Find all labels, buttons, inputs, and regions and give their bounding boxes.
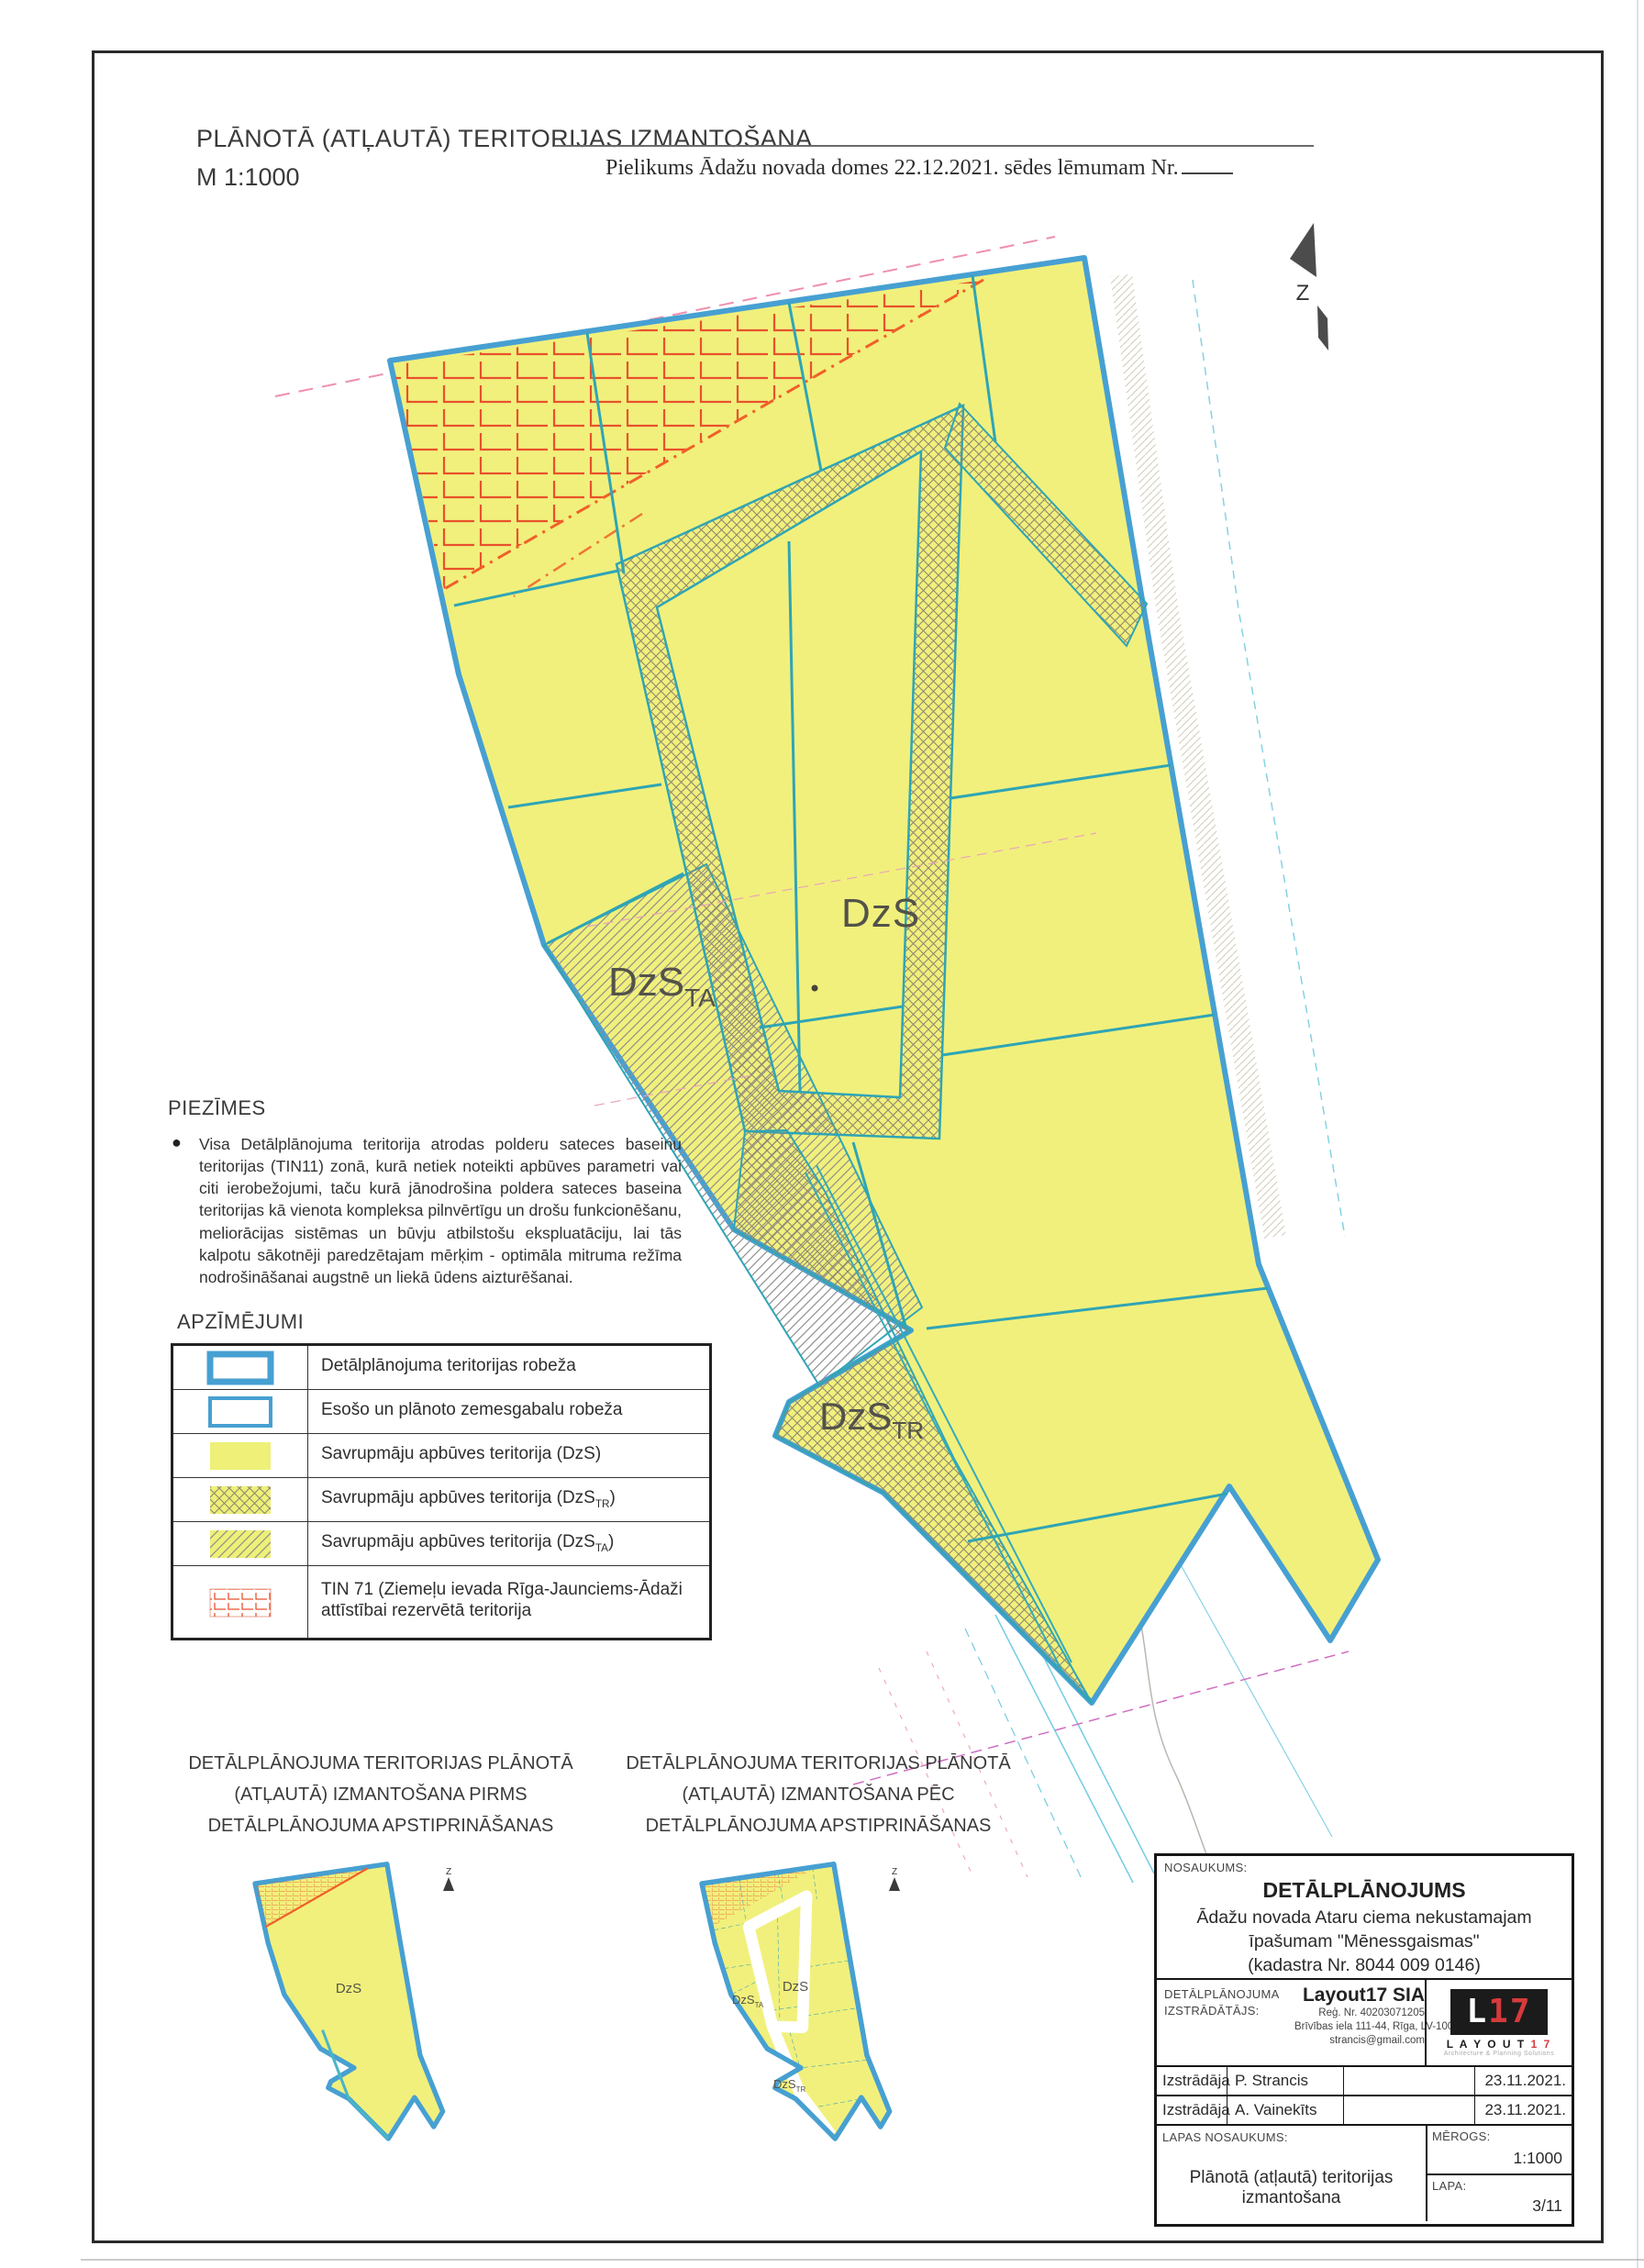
titleblock-name-row: NOSAUKUMS: DETĀLPLĀNOJUMS Ādažu novada A… (1157, 1856, 1572, 1980)
legend-table: Detālplānojuma teritorijas robeža Esošo … (171, 1343, 712, 1640)
company-reg: Reģ. Nr. 40203071205 (1294, 2007, 1425, 2020)
developer-label: DETĀLPLĀNOJUMA IZSTRĀDĀTĀJS: (1164, 1986, 1280, 2018)
swatch-territory-boundary-icon (173, 1346, 308, 1389)
notes-text: Visa Detālplānojuma teritorija atrodas p… (199, 1133, 682, 1288)
notes-block: PIEZĪMES ● Visa Detālplānojuma teritorij… (168, 1096, 682, 1288)
company-address: Brīvības iela 111-44, Rīga, LV-1001 (1294, 2020, 1425, 2034)
signature-role: Izstrādāja (1157, 2067, 1227, 2095)
company-logo: L17 L A Y O U T 1 7 Architecture & Plann… (1425, 1980, 1572, 2065)
swatch-dzs-tr-icon (173, 1478, 308, 1521)
legend-heading: APZĪMĒJUMI (177, 1310, 712, 1334)
logo-wordmark: L A Y O U T 1 7 (1427, 2038, 1572, 2051)
signature-name: P. Strancis (1227, 2067, 1344, 2095)
legend-label: Savrupmāju apbūves teritorija (DzSTR) (308, 1484, 709, 1515)
titleblock-developer-row: DETĀLPLĀNOJUMA IZSTRĀDĀTĀJS: Layout17 SI… (1157, 1980, 1572, 2067)
mini-map-after-heading: DETĀLPLĀNOJUMA TERITORIJAS PLĀNOTĀ (ATĻA… (603, 1748, 1034, 1841)
legend-row-territory-boundary: Detālplānojuma teritorijas robeža (173, 1346, 709, 1389)
project-line: Ādažu novada Ataru ciema nekustamajam (1157, 1907, 1572, 1929)
page-value: 3/11 (1532, 2196, 1562, 2216)
legend-label: Detālplānojuma teritorijas robeža (308, 1352, 709, 1383)
developer-info: Layout17 SIA Reģ. Nr. 40203071205 Brīvīb… (1294, 1980, 1425, 2065)
annex-text: Pielikums Ādažu novada domes 22.12.2021.… (605, 156, 1179, 180)
annex-rule (554, 145, 1314, 147)
signature-row: Izstrādāja A. Vainekīts 23.11.2021. (1157, 2096, 1572, 2126)
swatch-dzs-icon (173, 1434, 308, 1477)
sheet-name-cell: LAPAS NOSAUKUMS: Plānotā (atļautā) terit… (1157, 2126, 1427, 2221)
title-block: NOSAUKUMS: DETĀLPLĀNOJUMS Ādažu novada A… (1154, 1853, 1574, 2227)
scale-value: 1:1000 (1513, 2149, 1562, 2168)
legend-row-dzs-tr: Savrupmāju apbūves teritorija (DzSTR) (173, 1477, 709, 1521)
project-line: īpašumam "Mēnessgaismas" (1157, 1931, 1572, 1952)
bullet-icon: ● (168, 1133, 199, 1288)
page-scale: M 1:1000 (196, 163, 300, 192)
signature-row: Izstrādāja P. Strancis 23.11.2021. (1157, 2067, 1572, 2096)
annex-note: Pielikums Ādažu novada domes 22.12.2021.… (605, 154, 1233, 181)
sheet-name: Plānotā (atļautā) teritorijas izmantošan… (1157, 2168, 1426, 2208)
signature-space (1344, 2067, 1475, 2095)
project-line: (kadastra Nr. 8044 009 0146) (1157, 1955, 1572, 1976)
notes-heading: PIEZĪMES (168, 1096, 682, 1120)
legend-label: Savrupmāju apbūves teritorija (DzS) (308, 1440, 709, 1471)
titleblock-sheet-row: LAPAS NOSAUKUMS: Plānotā (atļautā) terit… (1157, 2126, 1572, 2221)
page-title: PLĀNOTĀ (ATĻAUTĀ) TERITORIJAS IZMANTOŠAN… (196, 125, 813, 153)
legend-row-tin71: TIN 71 (Ziemeļu ievada Rīga-Jaunciems-Ād… (173, 1565, 709, 1638)
scale-label: MĒROGS: (1432, 2129, 1491, 2143)
scan-edge-right (1637, 0, 1638, 2268)
scan-edge-bottom (81, 2259, 1644, 2261)
signature-date: 23.11.2021. (1475, 2101, 1572, 2119)
mini-map-before-heading: DETĀLPLĀNOJUMA TERITORIJAS PLĀNOTĀ (ATĻA… (165, 1748, 596, 1841)
signature-role: Izstrādāja (1157, 2096, 1227, 2124)
signature-space (1344, 2096, 1475, 2124)
swatch-parcel-boundary-icon (173, 1390, 308, 1433)
nosaukums-label: NOSAUKUMS: (1164, 1861, 1247, 1874)
swatch-tin71-icon (173, 1566, 308, 1638)
swatch-dzs-ta-icon (173, 1522, 308, 1565)
company-name: Layout17 SIA (1294, 1984, 1425, 2007)
scale-cell: MĒROGS: 1:1000 (1427, 2126, 1572, 2175)
layout17-logo-icon: L17 (1450, 1989, 1548, 2035)
legend-row-parcel-boundary: Esošo un plānoto zemesgabalu robeža (173, 1389, 709, 1433)
page-cell: LAPA: 3/11 (1427, 2175, 1572, 2221)
legend-block: APZĪMĒJUMI Detālplānojuma teritorijas ro… (171, 1310, 712, 1640)
sheet-label: LAPAS NOSAUKUMS: (1162, 2130, 1288, 2144)
legend-row-dzs: Savrupmāju apbūves teritorija (DzS) (173, 1433, 709, 1477)
logo-tagline: Architecture & Planning Solutions (1427, 2051, 1572, 2057)
signature-name: A. Vainekīts (1227, 2096, 1344, 2124)
legend-label: Savrupmāju apbūves teritorija (DzSTA) (308, 1529, 709, 1559)
legend-label: Esošo un plānoto zemesgabalu robeža (308, 1396, 709, 1427)
signature-date: 23.11.2021. (1475, 2072, 1572, 2090)
legend-label: TIN 71 (Ziemeļu ievada Rīga-Jaunciems-Ād… (308, 1576, 709, 1627)
project-title: DETĀLPLĀNOJUMS (1157, 1878, 1572, 1903)
legend-row-dzs-ta: Savrupmāju apbūves teritorija (DzSTA) (173, 1521, 709, 1565)
annex-number-blank (1182, 154, 1233, 174)
company-email: strancis@gmail.com (1294, 2034, 1425, 2048)
page-label: LAPA: (1432, 2179, 1466, 2193)
